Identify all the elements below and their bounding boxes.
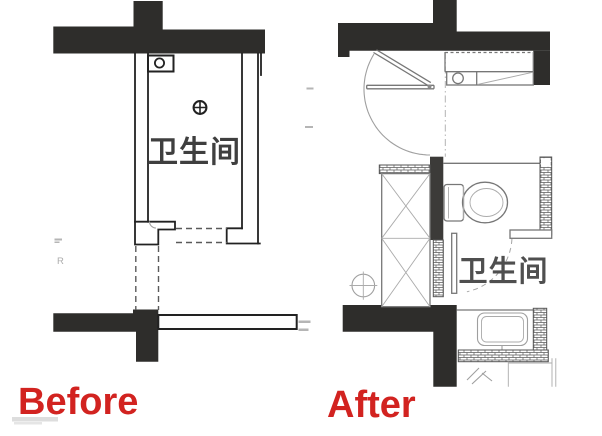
new-brick-wall-right bbox=[540, 157, 552, 235]
door-hinge bbox=[428, 85, 432, 89]
after-plan: 卫生间 After bbox=[299, 0, 556, 426]
entry-door bbox=[364, 50, 445, 157]
new-brick-wall-top bbox=[379, 165, 430, 174]
before-top-wall bbox=[53, 1, 265, 54]
bathroom-door-leaf bbox=[452, 233, 457, 293]
floor-drain-icon bbox=[193, 101, 207, 115]
new-brick-wall-basin-bottom bbox=[458, 350, 548, 362]
scan-artifacts-mid bbox=[299, 88, 314, 332]
artifact-letter: R bbox=[57, 256, 64, 267]
washbasin-fixture bbox=[478, 313, 528, 346]
wall-nib bbox=[510, 230, 552, 238]
axis-marker-icon bbox=[350, 272, 378, 300]
faucet-icon bbox=[467, 368, 492, 384]
brick-wall-cap bbox=[541, 158, 551, 167]
after-bottom-wall bbox=[343, 305, 457, 387]
before-door-opening-dashes bbox=[136, 229, 227, 311]
new-brick-wall-basin-right bbox=[533, 308, 546, 350]
pipe-riser-icon bbox=[148, 56, 174, 72]
washbasin-area bbox=[457, 308, 556, 386]
before-plan: 卫生间 R Before bbox=[12, 1, 297, 425]
after-top-right-column bbox=[533, 51, 550, 85]
after-room-label: 卫生间 bbox=[458, 254, 548, 288]
floorplan-canvas: 卫生间 R Before bbox=[0, 0, 602, 436]
floorplan-comparison-screenshot: 卫生间 R Before bbox=[0, 0, 602, 436]
after-divider-wall bbox=[430, 157, 443, 240]
new-brick-wall-mid bbox=[433, 240, 443, 297]
before-room-label: 卫生间 bbox=[148, 135, 241, 170]
before-label: Before bbox=[18, 381, 138, 423]
door-swing-arc bbox=[364, 54, 430, 155]
before-right-door-jamb bbox=[227, 228, 260, 243]
after-top-wall bbox=[338, 0, 550, 57]
scan-artifacts-left: R bbox=[55, 239, 65, 268]
wardrobe-cabinet bbox=[379, 165, 430, 307]
before-left-door-jamb bbox=[135, 222, 175, 245]
before-bottom-wall bbox=[53, 310, 158, 362]
after-label: After bbox=[327, 384, 416, 426]
counter-cabinet bbox=[445, 52, 533, 85]
toilet-fixture bbox=[444, 182, 508, 223]
before-outlined-wall bbox=[158, 315, 296, 329]
